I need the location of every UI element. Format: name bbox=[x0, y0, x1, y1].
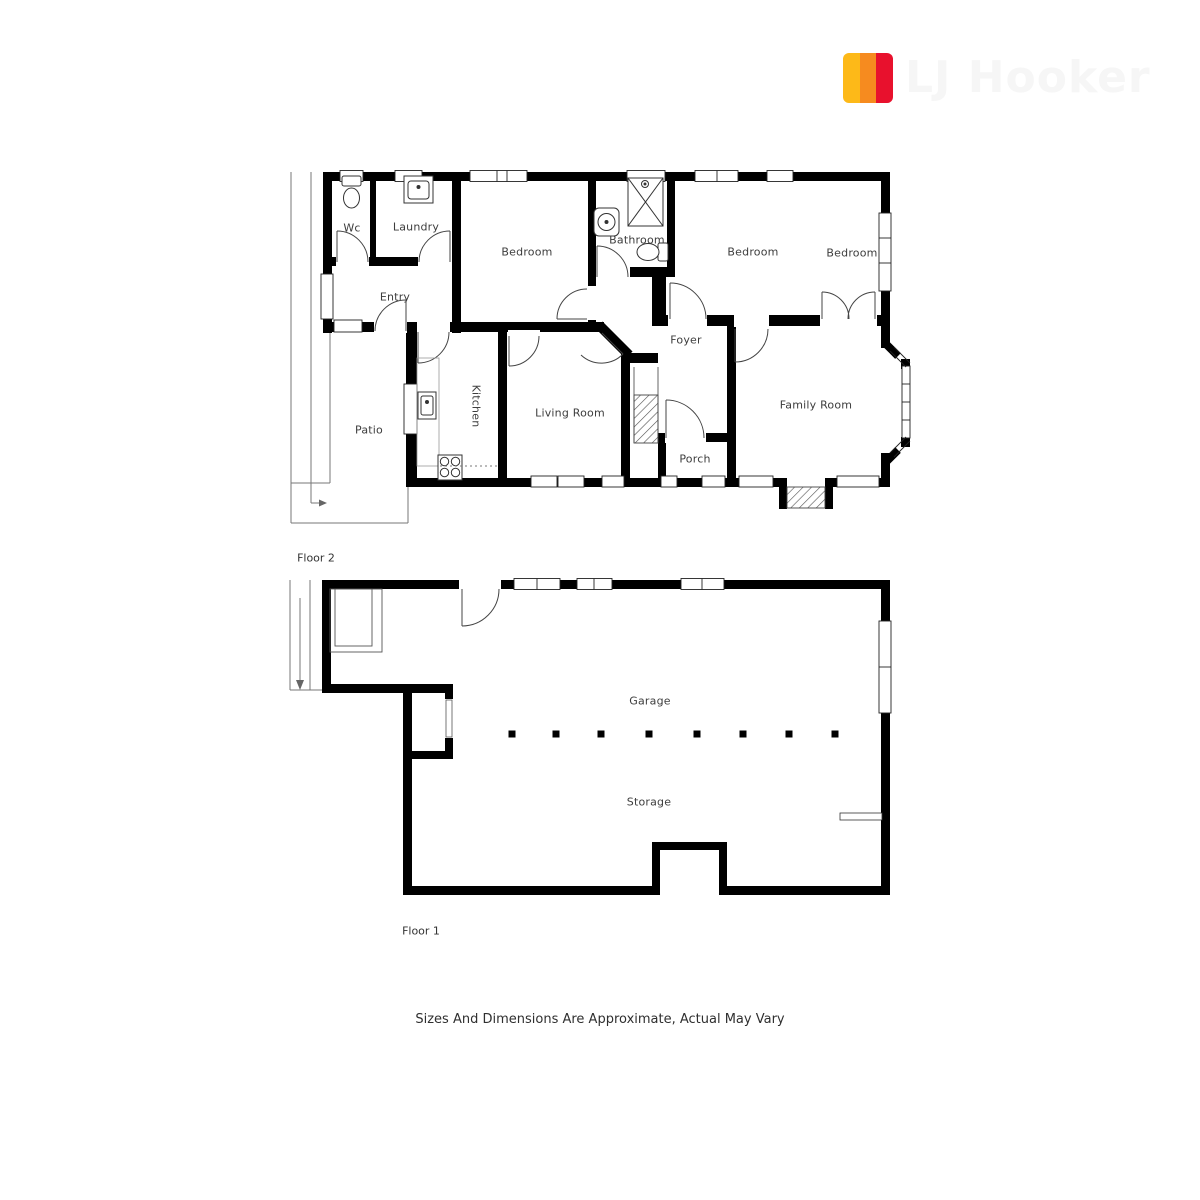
driveway-outline bbox=[290, 580, 322, 690]
room-label-laundry: Laundry bbox=[393, 221, 439, 234]
floor1-window-mullions bbox=[537, 579, 891, 668]
room-label-bedroom1: Bedroom bbox=[501, 246, 552, 259]
room-label-entry: Entry bbox=[380, 291, 410, 304]
toilet-icon bbox=[342, 176, 361, 208]
path-arrow-icon bbox=[319, 500, 327, 507]
floor1-plan bbox=[290, 579, 891, 897]
exterior-steps bbox=[787, 487, 825, 508]
stove-icon bbox=[438, 455, 462, 480]
room-label-bedroom3: Bedroom bbox=[826, 247, 877, 260]
room-label-garage: Garage bbox=[629, 695, 670, 708]
room-label-porch: Porch bbox=[679, 453, 710, 466]
closet-door bbox=[446, 700, 452, 737]
floor2-plan bbox=[291, 171, 910, 524]
room-label-kitchen: Kitchen bbox=[470, 385, 483, 428]
room-label-patio: Patio bbox=[355, 424, 383, 437]
floor1-walls bbox=[322, 580, 890, 895]
bathroom-sink-icon bbox=[594, 208, 619, 236]
floor1-entry-door bbox=[462, 589, 499, 626]
stairs-to-floor1 bbox=[634, 367, 658, 443]
diagonal-wall bbox=[599, 325, 629, 355]
disclaimer-text: Sizes And Dimensions Are Approximate, Ac… bbox=[0, 1012, 1200, 1027]
floorplan-page: LJ Hooker bbox=[0, 0, 1200, 1200]
shower-icon bbox=[628, 178, 663, 226]
room-label-bathroom: Bathroom bbox=[609, 234, 665, 247]
kitchen-counter bbox=[417, 358, 439, 466]
storage-shelf bbox=[840, 813, 882, 820]
room-label-foyer: Foyer bbox=[670, 334, 701, 347]
room-label-bedroom2: Bedroom bbox=[727, 246, 778, 259]
room-label-living: Living Room bbox=[535, 407, 605, 420]
floor2-caption: Floor 2 bbox=[297, 552, 335, 565]
driveway-arrow-icon bbox=[296, 680, 304, 690]
floor1-windows bbox=[514, 579, 891, 714]
room-label-wc: Wc bbox=[343, 222, 360, 235]
floor1-stairwell bbox=[330, 589, 382, 652]
laundry-sink-icon bbox=[404, 176, 433, 203]
room-label-family: Family Room bbox=[780, 399, 852, 412]
room-label-storage: Storage bbox=[627, 796, 671, 809]
floor1-caption: Floor 1 bbox=[402, 925, 440, 938]
garage-posts bbox=[509, 731, 839, 738]
